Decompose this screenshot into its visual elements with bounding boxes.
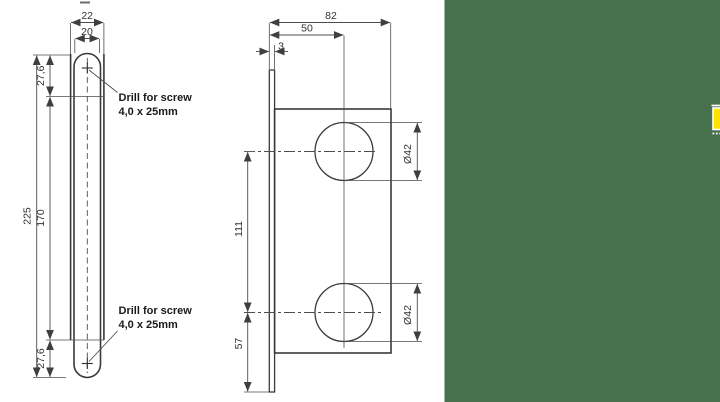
dim-width-outer-value: 22 [81,10,93,22]
dim-width-inner: 20 [75,26,99,39]
lock-case-outline [275,109,391,353]
dim-hole-spacing-value: 170 [35,209,47,227]
side-view: 82 50 3 Ø42 Ø42 111 57 [233,10,422,392]
dim-offset-bottom-side-value: 57 [233,338,245,350]
dim-hole-top-diameter: Ø42 [402,123,418,180]
dim-height-overall-value: 225 [22,207,34,225]
edge-marker[interactable] [712,106,720,134]
dim-depth-overall: 82 [270,10,390,23]
dim-width-inner-value: 20 [81,26,93,38]
dim-hole-center-depth: 50 [270,23,344,36]
dim-hole-bottom-diameter-value: Ø42 [402,305,414,325]
dim-faceplate-thickness: 3 [256,41,288,53]
drill-note-bottom-line2: 4,0 x 25mm [119,319,179,331]
datasheet-page: 22 20 27,6 225 170 27,6 Drill f [0,0,720,402]
dim-offset-bottom: 27,6 [35,341,50,377]
dim-hole-center-depth-value: 50 [301,23,313,35]
green-panel-background [445,0,720,402]
drill-note-bottom-line1: Drill for screw [119,305,193,317]
dim-offset-bottom-side: 57 [233,313,248,391]
front-view: 22 20 27,6 225 170 27,6 Drill f [22,3,193,378]
dim-hole-spacing: 170 [35,97,50,339]
dim-width-outer: 22 [71,10,103,23]
green-panel [445,0,720,402]
drill-note-top-line2: 4,0 x 25mm [119,106,179,118]
edge-marker-yellow-handle[interactable] [713,108,720,130]
dim-hole-spacing-side-value: 111 [233,221,245,237]
dim-offset-bottom-value: 27,6 [35,348,47,369]
technical-drawing: 22 20 27,6 225 170 27,6 Drill f [0,0,720,402]
drill-note-top-line1: Drill for screw [119,92,193,104]
dim-hole-top-diameter-value: Ø42 [402,144,414,164]
dim-hole-bottom-diameter: Ø42 [402,284,418,341]
dim-offset-top: 27,6 [35,56,50,96]
dim-depth-overall-value: 82 [325,10,337,22]
dim-hole-spacing-side: 111 [233,152,248,312]
dim-faceplate-thickness-value: 3 [278,41,284,53]
